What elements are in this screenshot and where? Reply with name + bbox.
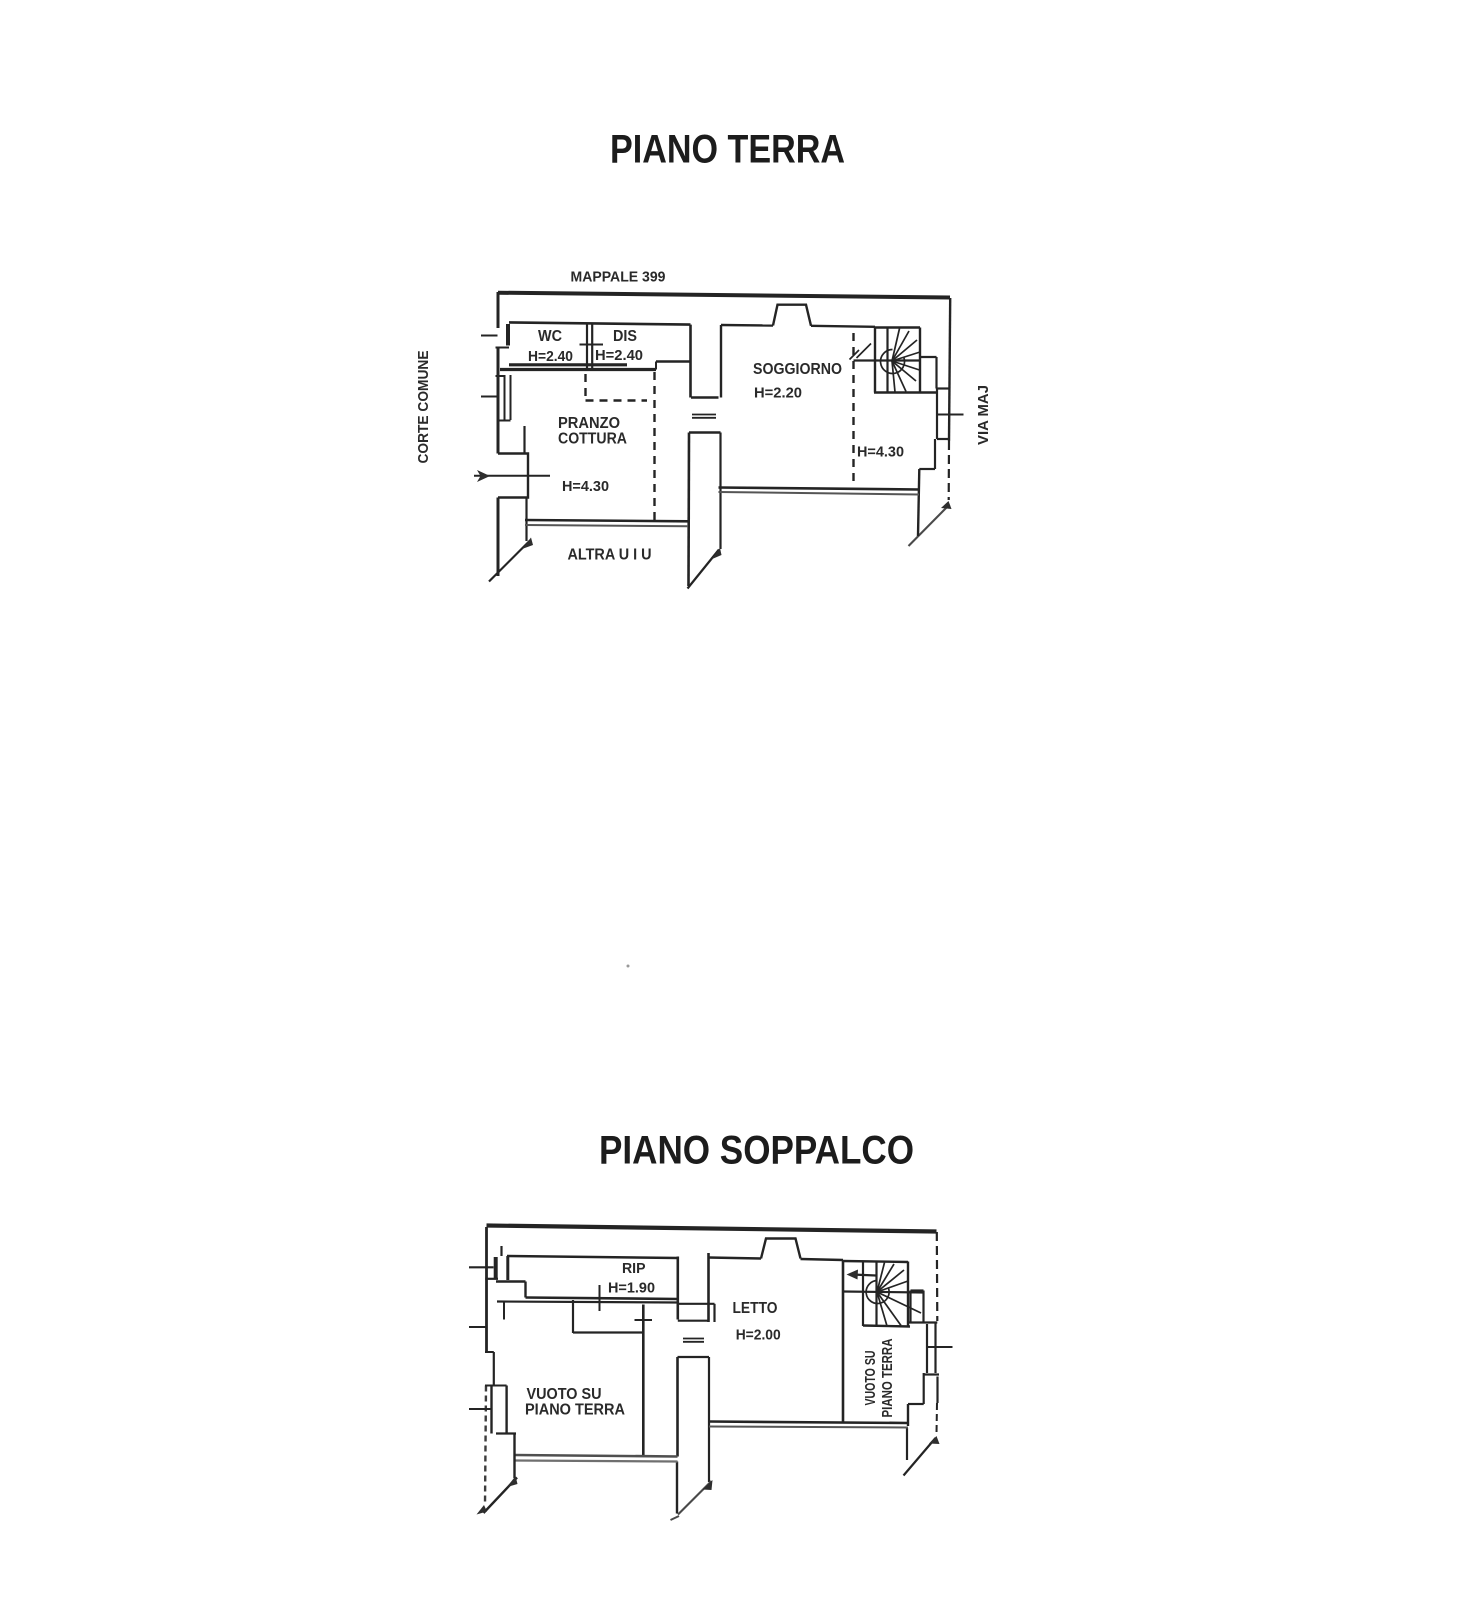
svg-text:H=2.40: H=2.40 — [595, 348, 643, 364]
svg-text:H=1.90: H=1.90 — [608, 1281, 655, 1297]
svg-text:LETTO: LETTO — [733, 1300, 778, 1317]
svg-text:PIANO TERRA: PIANO TERRA — [525, 1402, 625, 1419]
svg-text:WC: WC — [538, 328, 562, 345]
svg-text:MAPPALE 399: MAPPALE 399 — [571, 269, 666, 286]
svg-text:H=4.30: H=4.30 — [562, 479, 609, 495]
svg-text:CORTE COMUNE: CORTE COMUNE — [416, 350, 432, 463]
svg-text:VUOTO SU: VUOTO SU — [863, 1351, 879, 1406]
svg-text:H=2.00: H=2.00 — [736, 1328, 781, 1344]
svg-text:H=2.20: H=2.20 — [754, 386, 802, 402]
svg-text:PIANO SOPPALCO: PIANO SOPPALCO — [599, 1129, 914, 1173]
svg-text:PIANO TERRA: PIANO TERRA — [610, 128, 845, 172]
svg-text:PIANO TERRA: PIANO TERRA — [880, 1338, 896, 1417]
svg-text:DIS: DIS — [613, 328, 637, 345]
svg-text:VUOTO SU: VUOTO SU — [527, 1386, 602, 1403]
svg-text:RIP: RIP — [622, 1261, 646, 1277]
svg-text:VIA MAJ: VIA MAJ — [976, 385, 992, 445]
svg-text:ALTRA U I U: ALTRA U I U — [568, 547, 652, 564]
svg-text:PRANZO: PRANZO — [558, 415, 620, 432]
svg-text:H=2.40: H=2.40 — [528, 349, 573, 365]
svg-text:H=4.30: H=4.30 — [857, 445, 904, 461]
svg-text:COTTURA: COTTURA — [558, 431, 627, 448]
svg-text:SOGGIORNO: SOGGIORNO — [753, 361, 842, 378]
